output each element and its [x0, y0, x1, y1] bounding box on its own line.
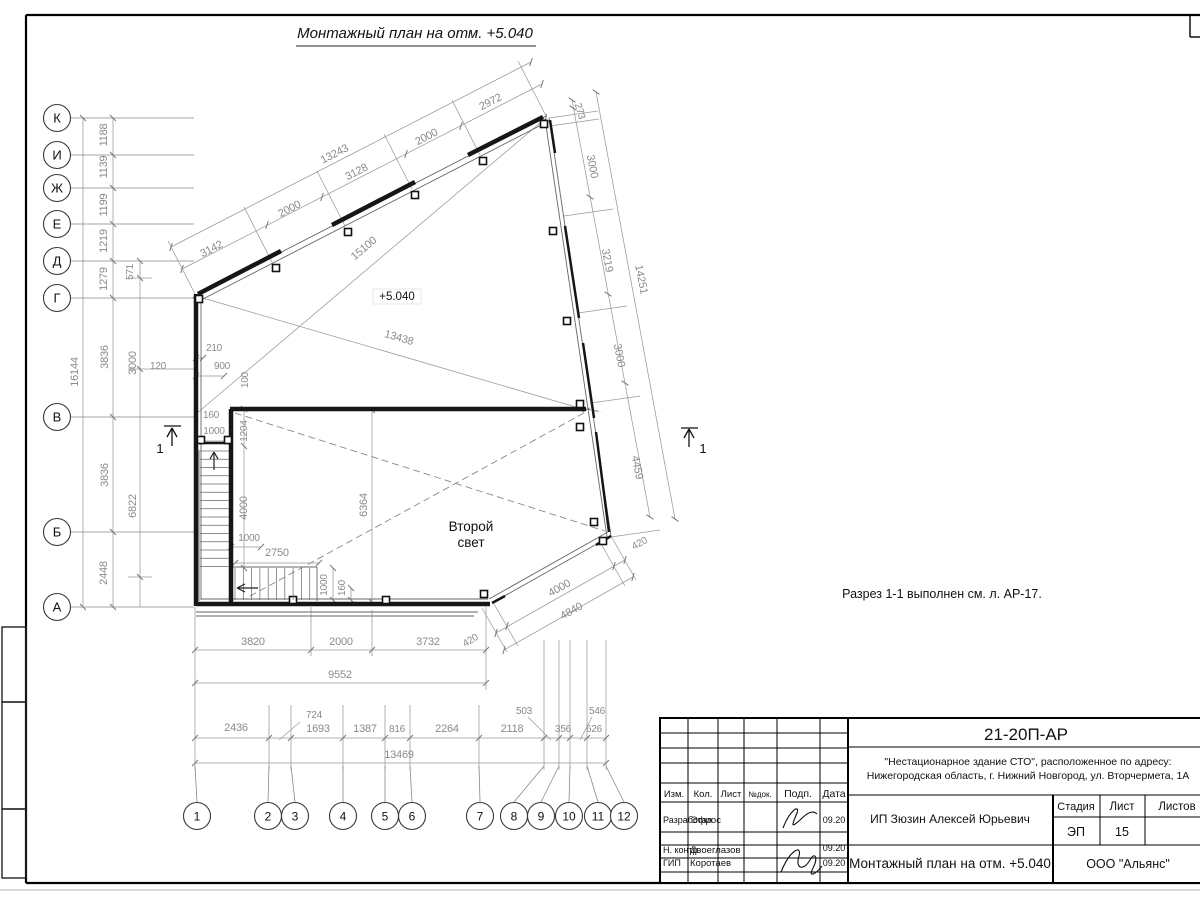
column-marker [412, 192, 419, 199]
dimension-label: 3836 [99, 345, 111, 369]
dimension-label: 14251 [632, 264, 649, 295]
tb-sheet-header: Лист [1110, 801, 1136, 813]
tb-col-header: Кол. [694, 789, 713, 800]
axis-line [268, 766, 269, 802]
dimension-label: 2000 [413, 127, 440, 148]
dimension-label: 3836 [99, 463, 111, 487]
dimension-line [493, 602, 518, 646]
dimension-label: 1387 [353, 723, 377, 735]
axis-bubble-label: И [52, 148, 61, 163]
dimension-label: 1000 [319, 574, 330, 596]
dimension-label: 2264 [435, 723, 459, 735]
wall [492, 596, 505, 603]
wall [332, 182, 415, 225]
elevation-label: +5.040 [379, 291, 415, 303]
dimension-label: 2000 [276, 199, 303, 220]
tb-date: 09.20 [823, 858, 846, 868]
axis-bubble-label: К [53, 111, 61, 126]
axis-bubble-label: В [53, 410, 62, 425]
tb-col-header: №док. [748, 790, 771, 799]
dimension-line [496, 560, 625, 633]
sheet-title: Монтажный план на отм. +5.040 [297, 25, 533, 42]
binding-box [2, 702, 26, 809]
dimension-label: 13469 [384, 749, 414, 761]
axis-bubble-label: 12 [617, 810, 631, 824]
dimension-label: 3000 [127, 351, 139, 375]
axis-line [410, 766, 412, 802]
note-text: Разрез 1-1 выполнен см. л. АР-17. [842, 587, 1042, 601]
dimension-label: 4840 [558, 600, 585, 622]
room-label: свет [457, 535, 484, 550]
dimension-label: 210 [206, 343, 223, 354]
dimension-line [518, 61, 546, 116]
wall [565, 226, 579, 318]
axis-bubble-label: А [53, 600, 62, 615]
dimension-label: 816 [389, 724, 406, 735]
axis-bubble-label: 10 [562, 810, 576, 824]
dimension-label: 2448 [98, 561, 110, 585]
wall-face-line [545, 119, 607, 537]
column-marker [600, 538, 607, 545]
axis-bubble-label: 3 [292, 810, 299, 824]
axis-bubble-label: 7 [477, 810, 484, 824]
tb-company: ООО "Альянс" [1086, 857, 1170, 871]
dimension-label: 160 [337, 579, 348, 596]
dimension-line [550, 119, 599, 126]
dimension-label: 6822 [127, 494, 139, 518]
tb-date: 09.20 [823, 815, 846, 825]
column-marker [591, 519, 598, 526]
column-marker [481, 591, 488, 598]
dimension-line [600, 542, 625, 586]
stair-arrow-icon [214, 452, 218, 459]
tb-col-header: Изм. [664, 789, 684, 800]
dimension-label: 1204 [239, 420, 250, 442]
tb-role: ГИП [663, 858, 681, 868]
tb-stage-header: Стадия [1057, 801, 1095, 813]
section-mark-icon [684, 429, 689, 438]
section-mark-icon [172, 428, 177, 437]
axis-bubble-label: 1 [194, 810, 201, 824]
dimension-label: 160 [203, 410, 220, 421]
dimension-label: 3000 [611, 343, 627, 369]
dimension-label: 356 [555, 724, 572, 735]
dimension-label: 4000 [546, 577, 573, 599]
column-marker [345, 229, 352, 236]
tb-doc-number: 21-20П-АР [984, 725, 1068, 744]
dimension-line [279, 722, 300, 740]
column-marker [198, 437, 205, 444]
binding-box [2, 809, 26, 878]
dimension-label: 1139 [98, 155, 110, 178]
axis-line [606, 766, 624, 802]
dimension-line [591, 396, 640, 403]
axis-bubble-label: Е [53, 217, 62, 232]
axis-line [514, 766, 544, 802]
column-marker [577, 401, 584, 408]
dimension-label: 16144 [69, 357, 81, 387]
blueprint-sheet: { "sheet": { "title": "Монтажный план на… [0, 0, 1200, 900]
drawing-canvas: Монтажный план на отм. +5.040Разрез 1-1 … [0, 0, 1200, 900]
axis-bubble-label: 6 [409, 810, 416, 824]
column-marker [196, 296, 203, 303]
axis-bubble-label: 5 [382, 810, 389, 824]
dimension-label: 4000 [238, 496, 250, 520]
tb-stage-value: ЭП [1067, 825, 1085, 839]
dimension-label: 626 [586, 724, 603, 735]
column-marker [564, 318, 571, 325]
dimension-label: 1693 [306, 723, 330, 735]
dimension-label: 4459 [629, 455, 645, 481]
dimension-line [578, 306, 627, 313]
column-marker [480, 158, 487, 165]
dimension-tick [170, 243, 173, 251]
dimension-line [182, 84, 542, 269]
axis-bubble-label: 2 [265, 810, 272, 824]
tb-client: ИП Зюзин Алексей Юрьевич [870, 812, 1030, 826]
column-marker [541, 121, 548, 128]
dimension-label: 900 [214, 361, 231, 372]
dimension-line [564, 209, 613, 216]
dimension-label: 420 [461, 632, 481, 650]
tb-name: Коротаев [690, 858, 731, 869]
dimension-line [384, 134, 412, 189]
dimension-label: 3128 [343, 162, 370, 183]
dimension-label: 6364 [358, 493, 370, 517]
axis-bubble-label: Г [53, 291, 60, 306]
wall [468, 117, 543, 155]
wall [596, 432, 609, 532]
axis-bubble-label: Д [53, 254, 62, 269]
dimension-label: 2972 [477, 92, 504, 113]
dimension-line [196, 296, 586, 410]
room-label: Второй [449, 519, 494, 534]
dimension-label: 1000 [238, 533, 260, 544]
dimension-label: 546 [589, 706, 606, 717]
tb-col-header: Лист [721, 789, 742, 800]
dimension-label: 2750 [265, 547, 289, 559]
axis-line [291, 766, 295, 802]
tb-sheet-title: Монтажный план на отм. +5.040 [849, 856, 1051, 871]
axis-line [569, 766, 570, 802]
tb-col-header: Подп. [784, 788, 812, 800]
section-mark-icon [167, 428, 172, 437]
axis-line [587, 766, 598, 802]
wall-face-line [199, 121, 549, 301]
dimension-label: 724 [306, 710, 323, 721]
dimension-label: 1199 [98, 193, 110, 216]
dimension-line [549, 111, 598, 118]
binding-box [2, 627, 26, 702]
dimension-label: 2000 [329, 636, 353, 648]
axis-bubble-label: Б [53, 525, 62, 540]
dimension-line [244, 207, 272, 262]
tb-sheet-number: 15 [1115, 825, 1129, 839]
wall [550, 120, 555, 153]
tb-sheets-header: Листов [1158, 801, 1195, 813]
column-marker [383, 597, 390, 604]
section-mark-label: 1 [156, 441, 163, 456]
axis-bubble-label: 4 [340, 810, 347, 824]
void-diagonal-line [243, 413, 584, 600]
tb-date: 09.20 [823, 843, 846, 853]
tb-name: Двоеглазов [690, 845, 741, 856]
section-mark-icon [689, 429, 694, 438]
dimension-label: 100 [240, 371, 251, 388]
dimension-label: 503 [516, 706, 533, 717]
dimension-label: 571 [125, 263, 136, 280]
dimension-label: 2118 [501, 723, 524, 735]
dimension-label: 3142 [198, 239, 225, 260]
dimension-label: 3219 [599, 248, 615, 274]
wall [198, 251, 281, 294]
dimension-line [611, 530, 660, 537]
dimension-line [452, 100, 480, 155]
axis-bubble-label: 9 [538, 810, 545, 824]
column-marker [273, 265, 280, 272]
dimension-line [528, 717, 551, 740]
axis-line [541, 766, 559, 802]
axis-line [195, 766, 197, 802]
dimension-label: 273 [572, 102, 587, 121]
dimension-label: 2436 [224, 722, 248, 734]
dimension-label: 420 [630, 535, 650, 553]
dimension-label: 1279 [98, 267, 110, 291]
column-marker [577, 424, 584, 431]
tb-project-address: Нижегородская область, г. Нижний Новгоро… [867, 770, 1190, 782]
dimension-tick [624, 556, 626, 564]
axis-bubble-label: 11 [592, 810, 605, 824]
tb-project-name: "Нестационарное здание СТО", расположенн… [884, 756, 1171, 768]
axis-bubble-label: 8 [511, 810, 518, 824]
axis-bubble-label: Ж [51, 181, 63, 196]
dimension-label: 3820 [241, 636, 265, 648]
dimension-label: 1219 [98, 229, 110, 253]
section-mark-label: 1 [699, 441, 706, 456]
dimension-label: 3732 [416, 636, 440, 648]
dimension-label: 120 [150, 361, 167, 372]
dimension-label: 1000 [203, 426, 225, 437]
void-diagonal-line [235, 413, 605, 531]
tb-name: Эфрос [691, 815, 721, 826]
dimension-label: 1188 [98, 123, 110, 146]
axis-line [479, 766, 480, 802]
dimension-tick [541, 80, 544, 88]
dimension-line [171, 62, 531, 247]
dimension-label: 13438 [383, 328, 415, 348]
column-marker [225, 437, 232, 444]
column-marker [550, 228, 557, 235]
dimension-label: 9552 [328, 669, 352, 681]
dimension-tick [495, 629, 497, 637]
tb-col-header: Дата [822, 788, 845, 800]
dimension-label: 15100 [349, 235, 379, 263]
dimension-tick [530, 58, 533, 66]
